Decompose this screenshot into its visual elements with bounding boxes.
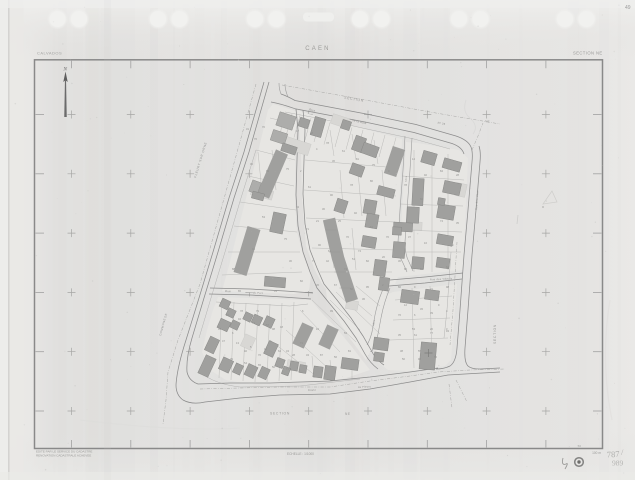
svg-text:N: N xyxy=(62,67,67,73)
svg-text:989: 989 xyxy=(612,459,624,468)
svg-text:du Parc: du Parc xyxy=(253,292,264,295)
svg-text:50: 50 xyxy=(578,444,582,448)
svg-text:100 m: 100 m xyxy=(592,451,601,455)
svg-text:ECHELLE : 1/1000: ECHELLE : 1/1000 xyxy=(287,452,314,456)
svg-text:RENOVATION CADASTRALE ACHEVEE: RENOVATION CADASTRALE ACHEVEE xyxy=(36,454,91,458)
svg-text:SECTION: SECTION xyxy=(270,412,290,416)
svg-text:Rue: Rue xyxy=(225,289,231,293)
svg-text:49: 49 xyxy=(625,5,631,11)
svg-text:NE: NE xyxy=(485,119,490,124)
svg-text:Allee: Allee xyxy=(405,175,408,182)
svg-text:SECTION NE: SECTION NE xyxy=(573,51,603,56)
svg-text:CAEN: CAEN xyxy=(305,46,330,52)
svg-text:CALVADOS: CALVADOS xyxy=(37,51,62,56)
svg-text:SECTION: SECTION xyxy=(493,324,497,344)
svg-text:Route: Route xyxy=(308,389,317,392)
svg-text:NE: NE xyxy=(345,412,351,416)
